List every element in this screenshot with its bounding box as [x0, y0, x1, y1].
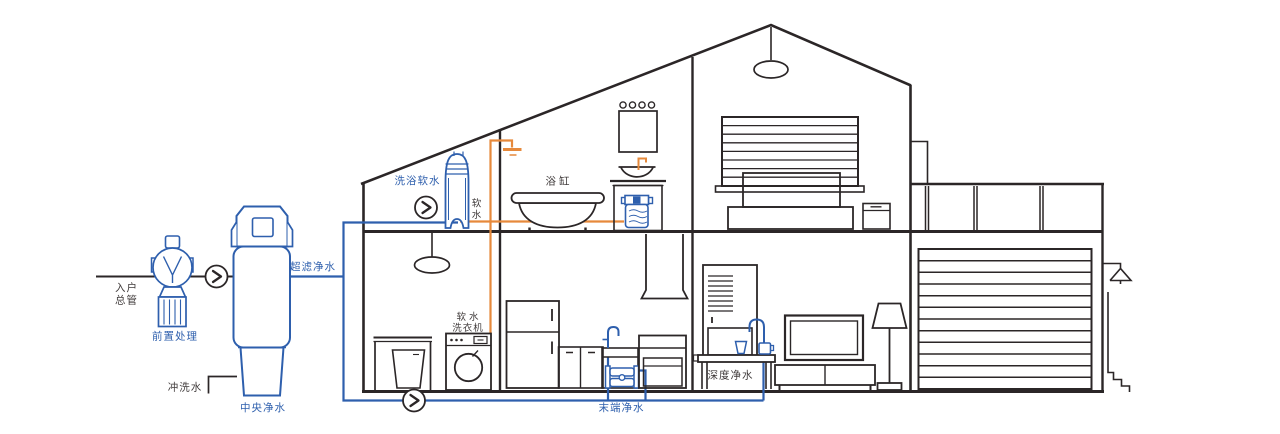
diagram-canvas: 入户 总管 前置处理 冲洗水 中央净水 超滤净水 洗浴软水 软水 浴缸 软水 洗… [0, 0, 1280, 434]
bathroom-undersink-filter [622, 196, 653, 228]
bathtub [512, 193, 605, 232]
terrace-posts [926, 186, 1044, 230]
label-inlet-main-line2: 总管 [115, 294, 138, 307]
bedroom [716, 27, 891, 229]
label-washer-line1: 软水 [456, 311, 481, 323]
flow-arrow-inlet [206, 266, 228, 288]
prefilter-housing [159, 297, 187, 327]
mirror-lights-icon [620, 102, 655, 108]
label-bathtub: 浴缸 [546, 175, 573, 188]
nightstand [863, 204, 890, 230]
flush-drain-pipe [209, 377, 238, 394]
vanity-faucet-icon [639, 159, 647, 171]
filter-gauge [619, 375, 625, 381]
bedroom-pendant-lamp-icon [754, 61, 788, 78]
laundry-pendant-lamp-icon [415, 257, 450, 273]
washer-button [450, 339, 453, 342]
bathroom [512, 102, 667, 232]
label-soft-water-vertical: 软水 [470, 197, 482, 221]
terminal-filter-unit [606, 366, 639, 388]
kitchen [507, 234, 699, 388]
soft-water-room [446, 152, 469, 229]
bed [728, 207, 853, 229]
label-central-purifier: 中央净水 [240, 401, 286, 414]
label-bath-soft-water: 洗浴软水 [395, 174, 441, 187]
label-flush-water: 冲洗水 [168, 381, 203, 394]
vanity-basin [619, 167, 656, 177]
tv [785, 316, 863, 361]
label-deep-purifier: 深度净水 [708, 369, 754, 382]
kitchen-faucet-icon [608, 327, 619, 348]
washer-button [460, 339, 463, 342]
lamp-base [878, 383, 902, 390]
cabinet-vent-slats [708, 276, 733, 311]
water-cup-icon [736, 342, 747, 354]
laundry-basket [393, 350, 425, 388]
flow-arrow-second-floor [415, 197, 437, 219]
central-base [241, 348, 284, 396]
tv-screen [791, 321, 858, 355]
flow-arrow-first-floor [403, 390, 425, 412]
dispenser-box [759, 343, 771, 354]
oven-door [644, 358, 683, 386]
floor-lamp-icon [873, 304, 907, 391]
bathtub-rim [512, 193, 605, 203]
central-head [237, 207, 288, 247]
outdoor-stairs [1108, 292, 1130, 392]
central-purifier-unit [232, 207, 293, 396]
bathtub-bowl [519, 203, 596, 228]
filter-valve [633, 197, 641, 204]
label-terminal-purifier: 末端净水 [599, 401, 645, 414]
label-inlet-main-line1: 入户 [115, 281, 138, 294]
washer-button [455, 339, 458, 342]
water-system-diagram: 入户 总管 前置处理 冲洗水 中央净水 超滤净水 洗浴软水 软水 浴缸 软水 洗… [0, 0, 1280, 434]
tv-frame [785, 316, 863, 361]
label-washer-line2: 洗衣机 [452, 322, 484, 334]
kitchen-cabinets [559, 347, 604, 388]
laundry-stand [374, 338, 433, 391]
washing-machine [446, 334, 491, 391]
wall-lamp-icon [1103, 264, 1132, 285]
range-hood-icon [642, 234, 688, 299]
refrigerator [507, 301, 560, 388]
deep-purifier-cabinet [703, 265, 757, 358]
garage-door-slats [919, 261, 1092, 378]
bench-top [698, 355, 775, 362]
soft-water-unit [446, 152, 469, 229]
bed-headboard [743, 173, 840, 207]
pre-treatment-unit [152, 236, 194, 327]
prefilter-cap [166, 236, 180, 248]
prefilter-neck [160, 287, 186, 297]
tv-stand [775, 365, 875, 391]
mirror [619, 111, 657, 152]
label-pre-treatment: 前置处理 [152, 330, 198, 343]
label-ultrafiltration: 超滤净水 [290, 260, 336, 273]
dispenser-faucet-unit [750, 320, 774, 355]
central-body [234, 247, 291, 348]
vent-pipe [911, 142, 928, 184]
lamp-shade [873, 304, 907, 329]
window-blind-slats [722, 126, 858, 178]
garage [910, 142, 1131, 393]
